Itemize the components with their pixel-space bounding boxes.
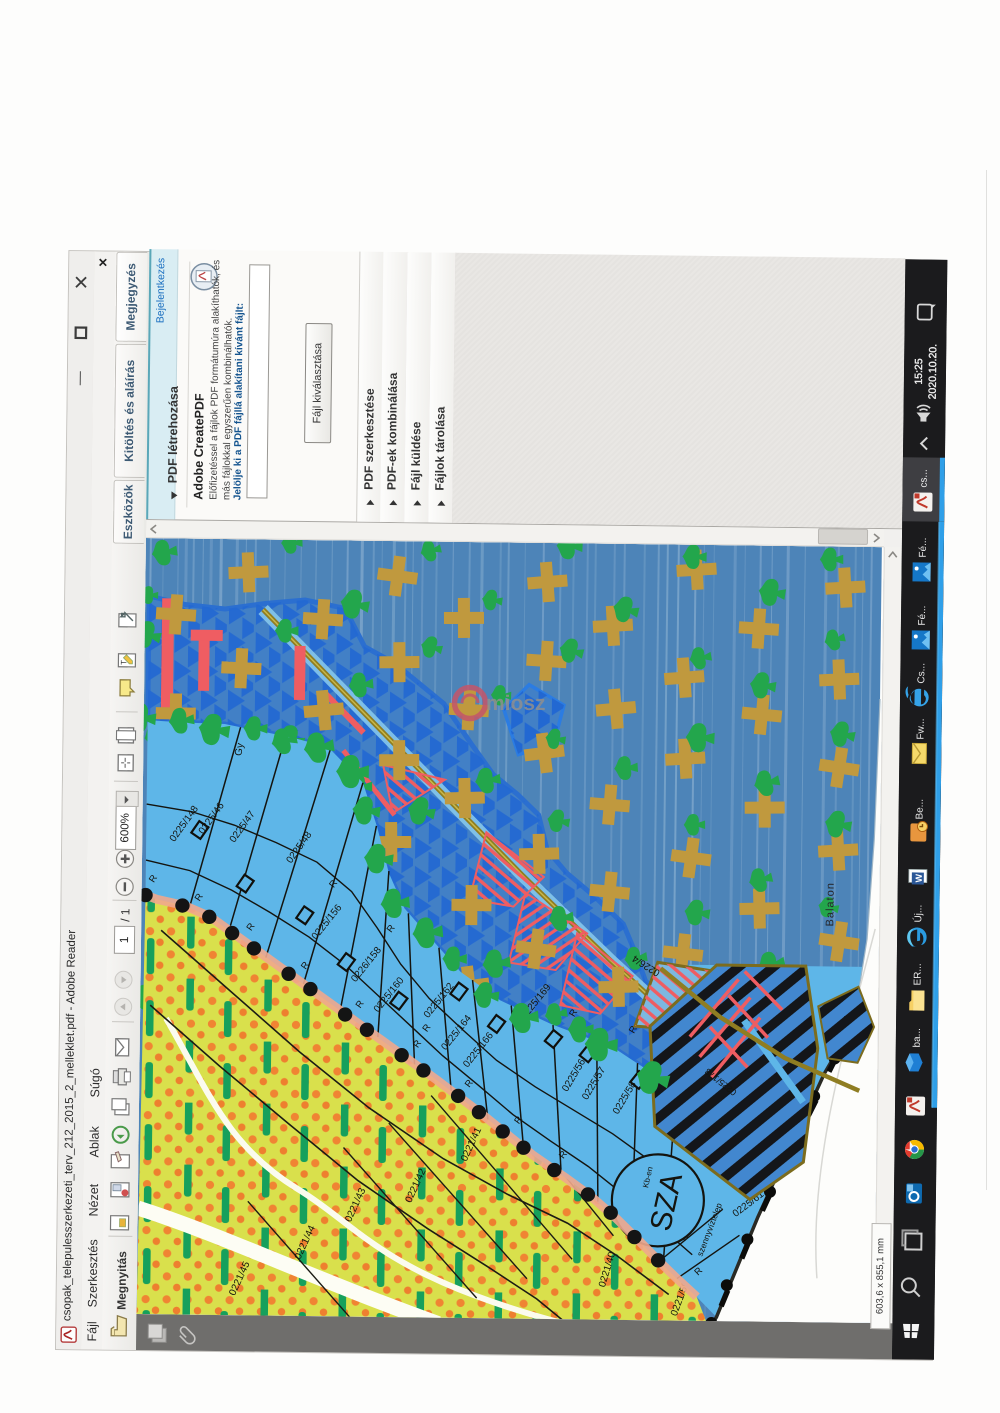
svg-text:ba...: ba... [912,1028,923,1048]
svg-text:15:25: 15:25 [913,358,925,385]
svg-text:Gy: Gy [233,742,246,756]
svg-text:T: T [119,660,128,665]
svg-text:Fé...: Fé... [917,605,928,625]
svg-text:Fw...: Fw... [916,718,927,739]
svg-text:miosz: miosz [486,692,546,715]
svg-text:Cs...: Cs... [916,663,927,684]
svg-text:ER...: ER... [913,963,924,985]
svg-text:Be...: Be... [915,799,926,820]
svg-text:Új...: Új... [912,905,924,923]
svg-text:W: W [914,873,924,882]
svg-text:2020.10.20.: 2020.10.20. [927,344,940,400]
svg-text:Fé...: Fé... [918,537,929,557]
svg-text:cs...: cs... [919,469,930,487]
svg-text:Balaton: Balaton [824,882,837,926]
